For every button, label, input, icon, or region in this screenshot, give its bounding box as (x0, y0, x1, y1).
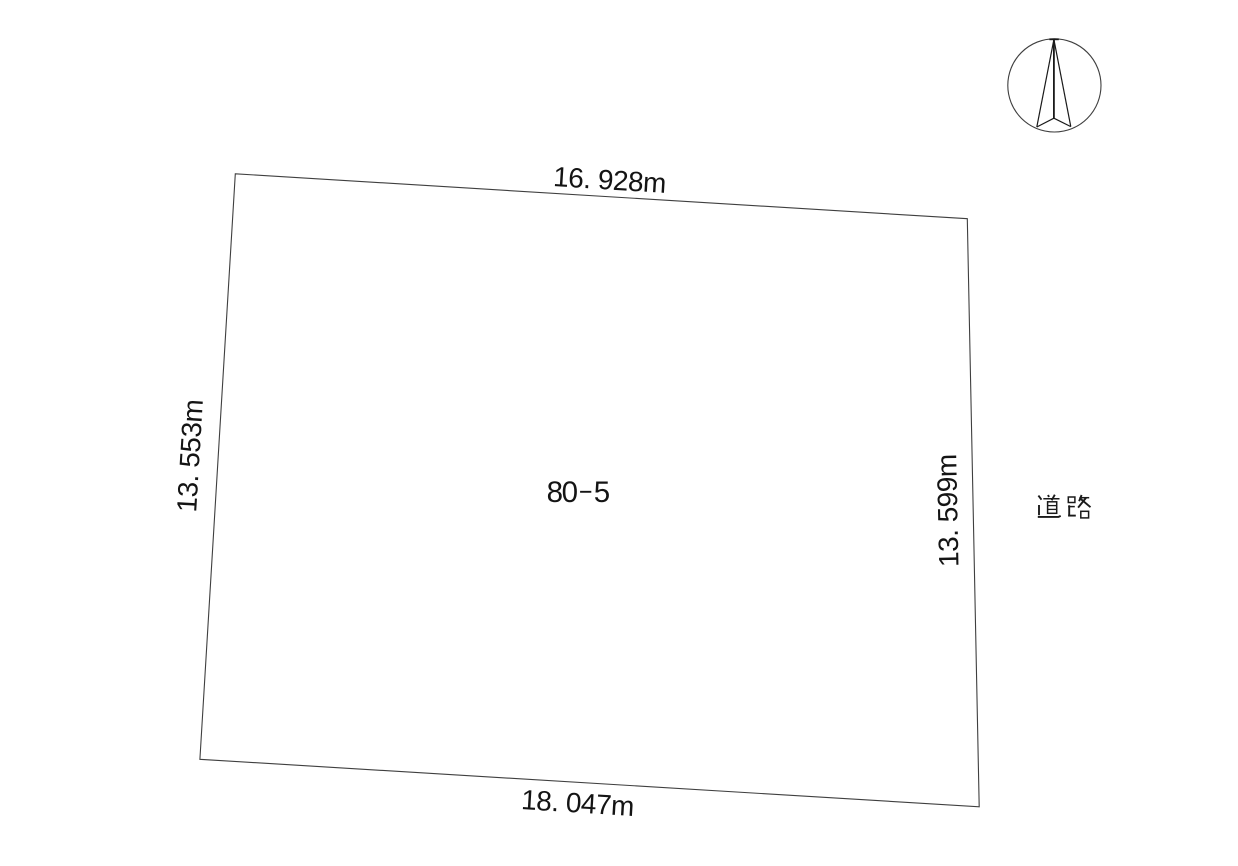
svg-text:13. 553m: 13. 553m (171, 399, 209, 513)
svg-text:16. 928m: 16. 928m (552, 161, 666, 199)
svg-text:18. 047m: 18. 047m (520, 784, 634, 822)
svg-text:13. 599m: 13. 599m (931, 454, 964, 567)
svg-text:80: 80 (547, 476, 578, 509)
svg-text:5: 5 (594, 476, 610, 509)
